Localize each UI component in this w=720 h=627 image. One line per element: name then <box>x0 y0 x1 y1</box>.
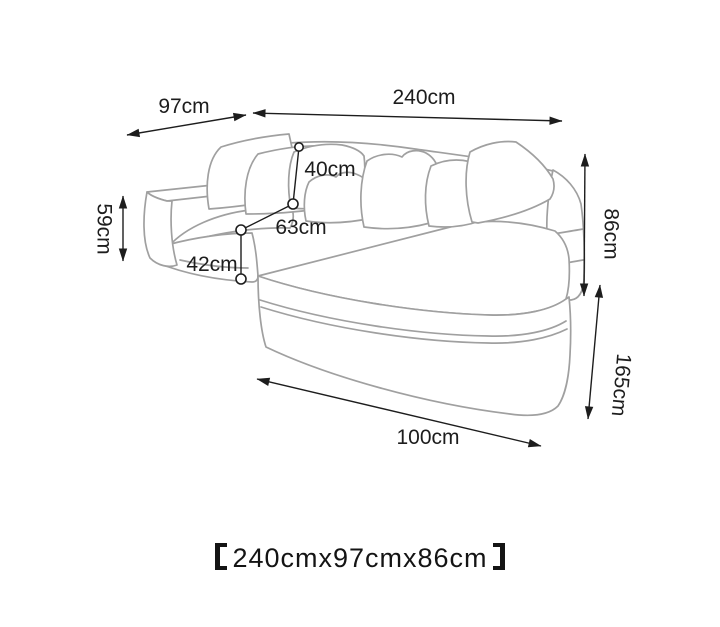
label-seat-height: 42cm <box>186 253 237 276</box>
chaise-length-arrow <box>588 285 600 419</box>
right-lenticular-bracket <box>493 543 505 570</box>
pillow-7 <box>466 141 554 223</box>
measure-node-top <box>295 143 303 151</box>
label-overall-width: 240cm <box>392 86 455 109</box>
diagram-canvas: 240cm 97cm 40cm 63cm 42cm 100cm 59cm 86c… <box>0 0 720 627</box>
label-overall-depth: 97cm <box>158 95 209 118</box>
label-chaise-length: 165cm <box>607 353 635 418</box>
label-seat-depth: 63cm <box>275 216 326 239</box>
label-chaise-width: 100cm <box>396 426 459 449</box>
measure-node-seat-front <box>236 225 246 235</box>
overall-width-arrow <box>253 113 562 121</box>
size-caption: 240cmx97cmx86cm <box>0 543 720 574</box>
sofa-dimension-diagram: 240cm 97cm 40cm 63cm 42cm 100cm 59cm 86c… <box>0 0 720 627</box>
size-caption-text: 240cmx97cmx86cm <box>232 543 487 573</box>
overall-height-arrow <box>584 154 585 296</box>
overall-depth-arrow <box>127 115 246 135</box>
label-overall-height: 86cm <box>600 208 623 259</box>
armrest-front <box>144 192 177 266</box>
left-lenticular-bracket <box>215 543 227 570</box>
label-back-cushion-height: 40cm <box>304 158 355 181</box>
label-arm-height: 59cm <box>93 203 116 254</box>
measure-node-mid <box>288 199 298 209</box>
